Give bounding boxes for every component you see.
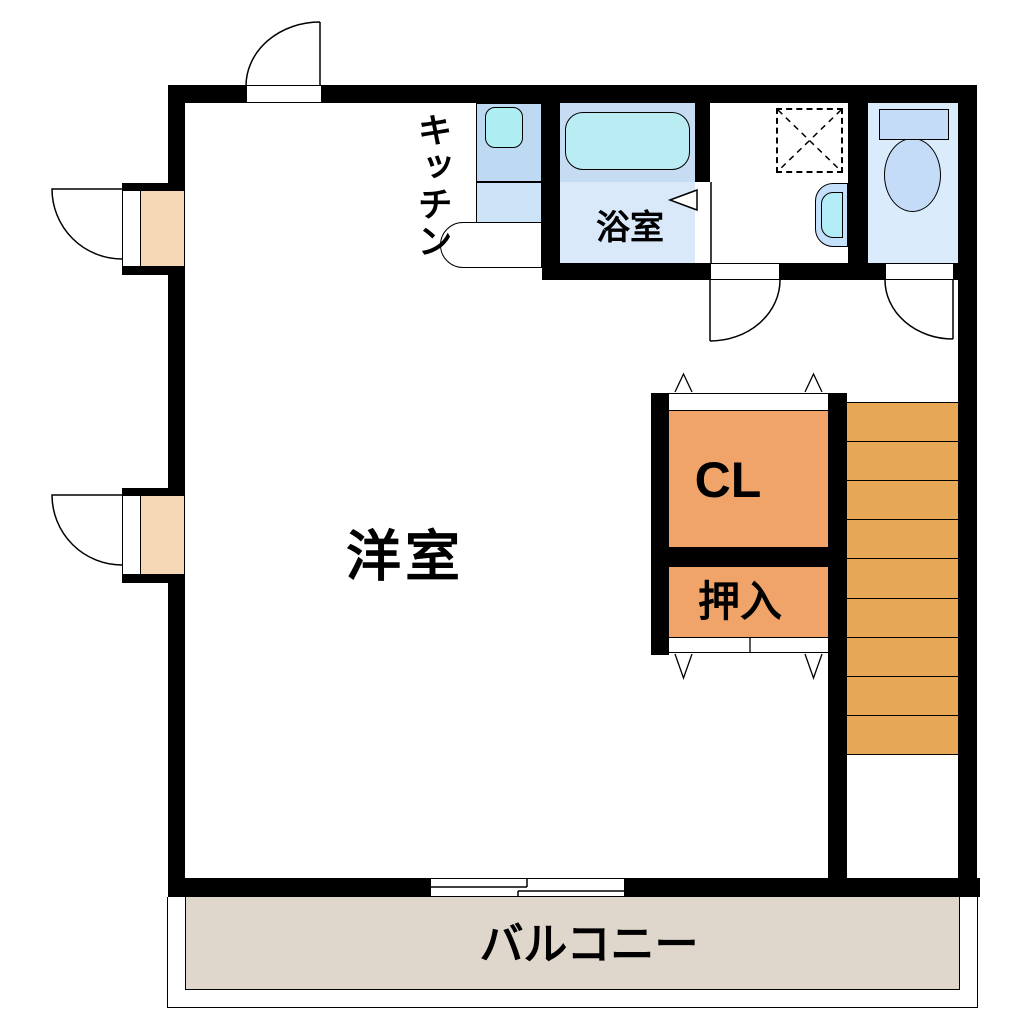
stair-tread [847, 716, 958, 755]
stair-tread [847, 599, 958, 638]
wall-left-2 [168, 267, 185, 495]
wall-closet-left [651, 393, 669, 655]
toilet-bowl-icon [884, 138, 941, 212]
wall-left-3 [168, 575, 185, 897]
main-room-label: 洋室 [346, 530, 464, 585]
closet-label: CL [695, 455, 762, 505]
door1-frame [122, 190, 141, 267]
door2-lintel [122, 488, 168, 495]
wall-bath-bottom [542, 263, 712, 280]
wall-bath-right [695, 85, 710, 182]
washing-machine-pan-icon [776, 108, 843, 173]
wall-stairs-left [828, 393, 847, 878]
stair-tread [847, 559, 958, 598]
wall-left-1 [168, 85, 185, 190]
oshiire-label: 押入 [698, 581, 782, 623]
door2-frame [122, 495, 141, 575]
door1-threshold [140, 190, 185, 267]
wall-right [958, 85, 977, 897]
wall-bath-left [542, 85, 560, 280]
wall-bottom-left [168, 878, 430, 897]
bathtub-icon [565, 112, 690, 170]
stair-tread [847, 677, 958, 716]
oshiire-bottom-sliding-door [669, 637, 828, 653]
wall-toilet-bottom-right [954, 263, 977, 280]
stair-tread [847, 638, 958, 677]
entrance-door-swing-icon [246, 22, 320, 86]
door1-lintel [122, 183, 168, 190]
door1-sill-stub [122, 267, 168, 275]
washroom-door-threshold [710, 263, 780, 280]
washbasin-bowl-icon [821, 192, 843, 238]
wall-between-doors [780, 263, 885, 280]
floor-plan: 洋室 キッチン 浴室 CL 押入 バルコニー [0, 0, 1020, 1020]
kitchen-counter-rounded [440, 222, 542, 268]
balcony-sliding-window [430, 878, 625, 897]
stair-tread [847, 520, 958, 559]
left-door1-swing-icon [52, 189, 122, 259]
door2-sill-stub [122, 575, 168, 583]
toilet-door-swing-icon [885, 280, 953, 339]
entrance-threshold [246, 85, 322, 103]
staircase [847, 402, 958, 755]
kitchen-counter-lower [476, 182, 542, 223]
left-door2-swing-icon [52, 495, 122, 565]
stair-tread [847, 403, 958, 442]
closet-divider-wall [669, 547, 828, 567]
closet-top-sliding-door [669, 393, 828, 411]
toilet-tank-icon [879, 109, 949, 140]
kitchen-sink-icon [485, 107, 523, 148]
bathroom-label: 浴室 [596, 211, 664, 245]
wall-top-right [322, 85, 977, 103]
stair-tread [847, 442, 958, 481]
wall-washroom-toilet-divider [848, 85, 868, 263]
wall-bottom-right [625, 878, 980, 897]
stair-tread [847, 481, 958, 520]
balcony-label: バルコニー [479, 923, 698, 967]
door2-threshold [140, 495, 185, 575]
washroom-door-swing-icon [710, 280, 780, 341]
kitchen-label: キッチン [415, 112, 450, 260]
toilet-door-threshold [885, 263, 954, 280]
